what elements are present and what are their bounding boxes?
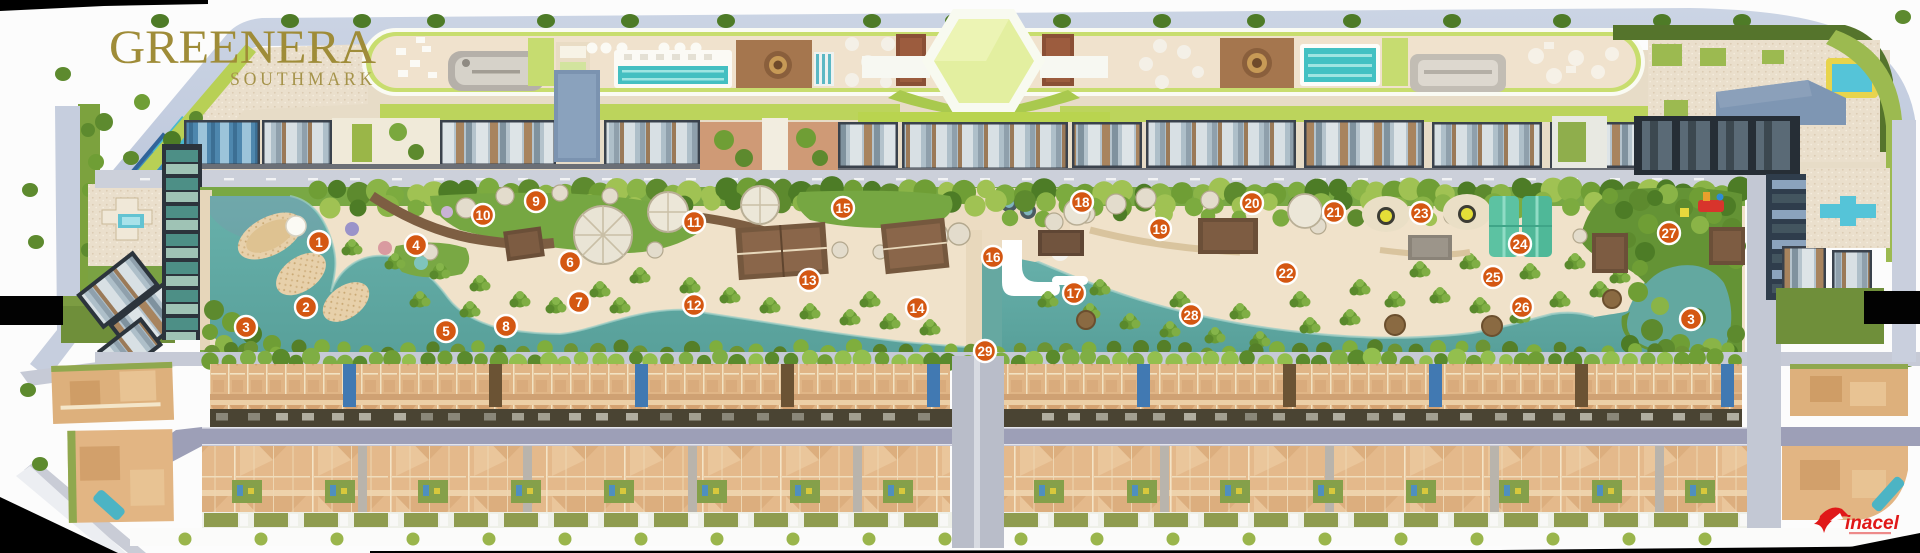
svg-text:5: 5 (442, 324, 450, 339)
svg-text:3: 3 (1687, 312, 1695, 327)
svg-text:6: 6 (566, 255, 574, 270)
svg-text:10: 10 (475, 208, 490, 223)
svg-text:inacel: inacel (1845, 513, 1900, 534)
svg-text:26: 26 (1514, 300, 1530, 315)
svg-text:4: 4 (412, 238, 420, 253)
svg-text:GREENERA: GREENERA (109, 21, 376, 74)
svg-text:20: 20 (1244, 196, 1259, 211)
svg-text:16: 16 (985, 250, 1001, 265)
svg-text:25: 25 (1485, 270, 1501, 285)
svg-text:7: 7 (575, 295, 583, 310)
svg-text:13: 13 (801, 273, 817, 288)
svg-text:15: 15 (835, 201, 851, 216)
svg-text:1: 1 (315, 235, 323, 250)
svg-text:19: 19 (1152, 222, 1167, 237)
svg-text:SOUTHMARK: SOUTHMARK (230, 69, 376, 90)
svg-text:29: 29 (977, 344, 992, 359)
svg-text:8: 8 (502, 319, 510, 334)
svg-text:11: 11 (687, 215, 702, 230)
svg-text:2: 2 (302, 300, 310, 315)
svg-text:22: 22 (1278, 266, 1293, 281)
svg-text:17: 17 (1066, 286, 1081, 301)
svg-text:27: 27 (1661, 226, 1676, 241)
svg-text:12: 12 (686, 298, 701, 313)
svg-text:24: 24 (1512, 237, 1528, 252)
svg-text:21: 21 (1326, 205, 1342, 220)
svg-text:18: 18 (1074, 195, 1090, 210)
svg-text:9: 9 (532, 194, 540, 209)
svg-text:28: 28 (1183, 308, 1199, 323)
svg-text:14: 14 (909, 301, 925, 316)
svg-text:3: 3 (242, 320, 250, 335)
svg-text:23: 23 (1413, 206, 1429, 221)
